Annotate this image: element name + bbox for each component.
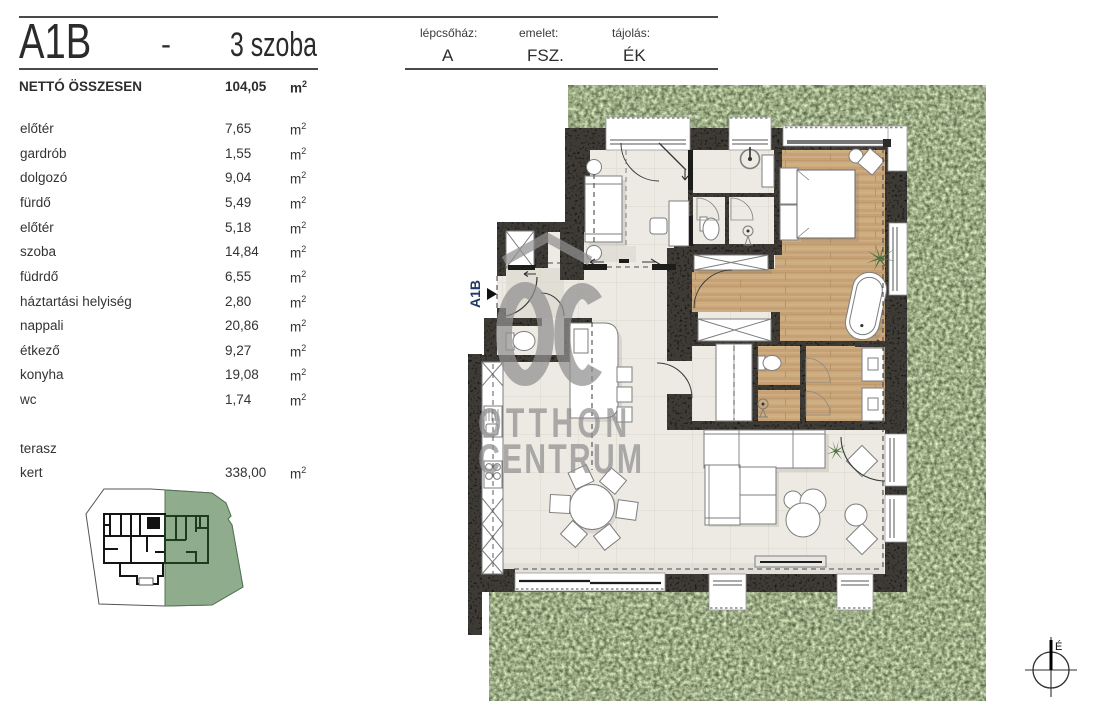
svg-text:CENTRUM: CENTRUM	[478, 435, 644, 482]
svg-text:A1B: A1B	[467, 280, 483, 308]
svg-text:É: É	[1055, 640, 1062, 653]
